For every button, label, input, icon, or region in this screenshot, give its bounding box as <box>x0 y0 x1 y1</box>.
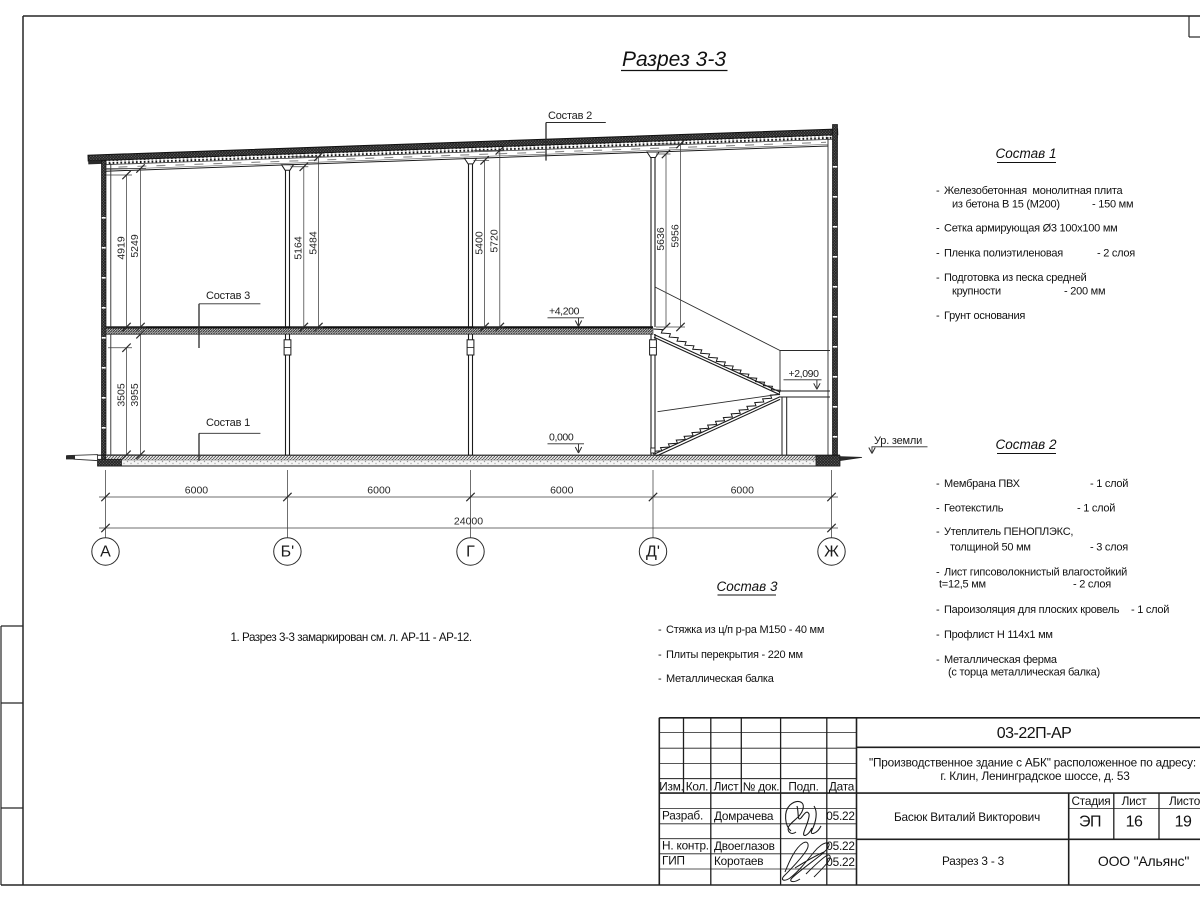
svg-text:Подп.: Подп. <box>788 780 818 794</box>
svg-text:- 2 слоя: - 2 слоя <box>1097 248 1135 260</box>
svg-text:Состав 3: Состав 3 <box>206 290 250 302</box>
svg-text:Пленка полиэтиленовая: Пленка полиэтиленовая <box>944 248 1063 260</box>
svg-text:- 1 слой: - 1 слой <box>1077 503 1115 515</box>
svg-text:4919: 4919 <box>115 236 127 260</box>
svg-text:Д': Д' <box>646 544 660 561</box>
svg-text:Кол.: Кол. <box>686 780 709 794</box>
svg-text:ООО "Альянс": ООО "Альянс" <box>1098 853 1189 869</box>
svg-text:-: - <box>936 654 940 666</box>
svg-text:Состав 3: Состав 3 <box>717 579 778 594</box>
svg-text:Геотекстиль: Геотекстиль <box>944 503 1004 515</box>
svg-text:Домрачева: Домрачева <box>714 809 774 823</box>
svg-text:6000: 6000 <box>731 485 755 497</box>
svg-text:-: - <box>936 310 940 322</box>
svg-text:Стяжка из ц/п р-ра М150 - 40 м: Стяжка из ц/п р-ра М150 - 40 мм <box>666 624 824 636</box>
svg-text:Утеплитель ПЕНОПЛЭКС,: Утеплитель ПЕНОПЛЭКС, <box>944 526 1073 538</box>
svg-text:Стадия: Стадия <box>1071 794 1110 808</box>
svg-text:+4,200: +4,200 <box>549 306 580 318</box>
svg-text:- 2 слоя: - 2 слоя <box>1073 579 1111 591</box>
svg-text:- 150 мм: - 150 мм <box>1092 199 1133 211</box>
svg-text:6000: 6000 <box>550 485 574 497</box>
svg-text:"Производственное здание с АБК: "Производственное здание с АБК" располож… <box>869 756 1196 770</box>
svg-text:5164: 5164 <box>293 236 305 260</box>
svg-text:Разраб.: Разраб. <box>662 809 703 823</box>
svg-text:1. Разрез 3-3 замаркирован см.: 1. Разрез 3-3 замаркирован см. л. АР-11 … <box>231 631 472 644</box>
svg-text:Мембрана ПВХ: Мембрана ПВХ <box>944 478 1021 490</box>
svg-text:-: - <box>936 629 940 641</box>
svg-text:t=12,5 мм: t=12,5 мм <box>939 579 986 591</box>
svg-text:Грунт основания: Грунт основания <box>944 310 1025 322</box>
svg-text:Ж: Ж <box>824 544 839 561</box>
svg-text:Состав 2: Состав 2 <box>548 110 592 122</box>
svg-text:0,000: 0,000 <box>549 432 574 444</box>
svg-text:16: 16 <box>1126 814 1143 831</box>
svg-text:Лист: Лист <box>714 780 740 794</box>
svg-text:Двоеглазов: Двоеглазов <box>714 839 775 853</box>
svg-text:Состав 2: Состав 2 <box>996 437 1057 452</box>
svg-text:- 1 слой: - 1 слой <box>1090 478 1128 490</box>
svg-text:Состав 1: Состав 1 <box>206 417 250 429</box>
svg-text:-: - <box>936 478 940 490</box>
svg-text:-: - <box>658 649 662 661</box>
svg-text:Металлическая ферма: Металлическая ферма <box>944 654 1058 666</box>
svg-text:(с торца металлическая балка): (с торца металлическая балка) <box>948 667 1100 679</box>
svg-text:Профлист Н 114х1 мм: Профлист Н 114х1 мм <box>944 629 1053 641</box>
svg-text:Б': Б' <box>281 544 295 561</box>
svg-text:05.22: 05.22 <box>826 839 855 853</box>
svg-text:А: А <box>100 544 111 561</box>
svg-text:-: - <box>658 624 662 636</box>
svg-text:Разрез 3 - 3: Разрез 3 - 3 <box>942 854 1005 868</box>
svg-text:05.22: 05.22 <box>826 809 855 823</box>
svg-text:Сетка армирующая Ø3 100х100 мм: Сетка армирующая Ø3 100х100 мм <box>944 223 1117 235</box>
svg-text:03-22П-АР: 03-22П-АР <box>997 725 1072 742</box>
svg-text:Н. контр.: Н. контр. <box>662 839 709 853</box>
svg-text:Басюк Виталий Викторович: Басюк Виталий Викторович <box>894 810 1040 824</box>
svg-text:-: - <box>936 248 940 260</box>
svg-text:Состав 1: Состав 1 <box>996 146 1057 161</box>
svg-text:Железобетонная монолитная пли: Железобетонная монолитная плита <box>944 185 1124 197</box>
svg-text:3955: 3955 <box>129 383 141 407</box>
svg-text:Разрез 3-3: Разрез 3-3 <box>622 48 726 71</box>
svg-text:Коротаев: Коротаев <box>714 854 763 868</box>
svg-text:№ док.: № док. <box>743 780 780 794</box>
svg-text:5484: 5484 <box>307 231 319 255</box>
svg-text:Плиты перекрытия - 220 мм: Плиты перекрытия - 220 мм <box>666 649 803 661</box>
svg-text:крупности: крупности <box>952 286 1001 298</box>
svg-text:24000: 24000 <box>454 516 483 528</box>
svg-text:Изм.: Изм. <box>659 780 683 794</box>
svg-text:5400: 5400 <box>474 231 486 255</box>
svg-text:-: - <box>936 604 940 616</box>
svg-text:Г: Г <box>466 544 475 561</box>
svg-text:6000: 6000 <box>185 485 209 497</box>
svg-text:Лист: Лист <box>1122 794 1148 808</box>
svg-text:6000: 6000 <box>367 485 391 497</box>
svg-text:+2,090: +2,090 <box>789 368 820 380</box>
svg-text:5249: 5249 <box>129 234 141 258</box>
svg-text:-: - <box>936 526 940 538</box>
svg-text:-: - <box>936 567 940 579</box>
svg-text:5720: 5720 <box>489 229 501 253</box>
svg-text:-: - <box>936 272 940 284</box>
svg-text:-: - <box>936 503 940 515</box>
svg-text:-: - <box>658 673 662 685</box>
svg-text:5636: 5636 <box>655 227 667 251</box>
svg-text:5956: 5956 <box>669 224 681 248</box>
svg-text:Дата: Дата <box>829 780 855 794</box>
svg-text:3505: 3505 <box>115 383 127 407</box>
svg-text:- 3 слоя: - 3 слоя <box>1090 542 1128 554</box>
svg-text:ЭП: ЭП <box>1079 814 1101 831</box>
svg-text:- 1 слой: - 1 слой <box>1131 604 1169 616</box>
svg-text:-: - <box>936 185 940 197</box>
svg-text:- 200 мм: - 200 мм <box>1064 286 1105 298</box>
svg-text:г. Клин, Ленинградское шоссе,: г. Клин, Ленинградское шоссе, д. 53 <box>940 769 1130 783</box>
svg-text:Подготовка из песка средней: Подготовка из песка средней <box>944 272 1087 284</box>
svg-text:Ур. земли: Ур. земли <box>874 435 922 447</box>
svg-text:ГИП: ГИП <box>662 854 685 868</box>
svg-text:из бетона В 15 (М200): из бетона В 15 (М200) <box>952 199 1060 211</box>
svg-text:-: - <box>936 223 940 235</box>
svg-text:Пароизоляция для плоских крове: Пароизоляция для плоских кровель <box>944 604 1120 616</box>
svg-text:Металлическая балка: Металлическая балка <box>666 673 775 685</box>
svg-text:19: 19 <box>1175 814 1192 831</box>
svg-text:Лист гипсоволокнистый влагосто: Лист гипсоволокнистый влагостойкий <box>944 567 1127 579</box>
svg-text:толщиной 50 мм: толщиной 50 мм <box>950 542 1031 554</box>
svg-text:Листов: Листов <box>1169 794 1200 808</box>
